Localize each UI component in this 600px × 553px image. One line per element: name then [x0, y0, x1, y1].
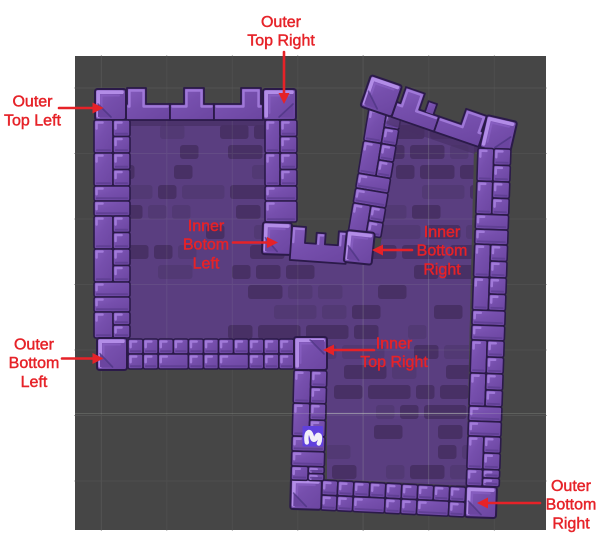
svg-text:Inner: Inner [376, 336, 413, 353]
svg-text:Outer: Outer [551, 478, 592, 495]
svg-text:Outer: Outer [12, 94, 53, 111]
svg-text:Right: Right [423, 261, 461, 278]
svg-text:Botom: Botom [183, 237, 229, 254]
svg-text:Bottom: Bottom [546, 497, 597, 514]
svg-text:Outer: Outer [14, 337, 55, 354]
svg-text:Inner: Inner [424, 224, 461, 241]
svg-text:Outer: Outer [261, 14, 302, 31]
svg-text:Top Right: Top Right [247, 33, 315, 50]
svg-text:Bottom: Bottom [9, 355, 60, 372]
svg-text:Bottom: Bottom [417, 243, 468, 260]
svg-text:Inner: Inner [188, 218, 225, 235]
svg-text:Left: Left [193, 255, 220, 272]
svg-text:Right: Right [552, 515, 590, 532]
svg-text:Top Right: Top Right [360, 354, 428, 371]
svg-text:Left: Left [21, 374, 48, 391]
svg-text:Top Left: Top Left [4, 113, 61, 130]
